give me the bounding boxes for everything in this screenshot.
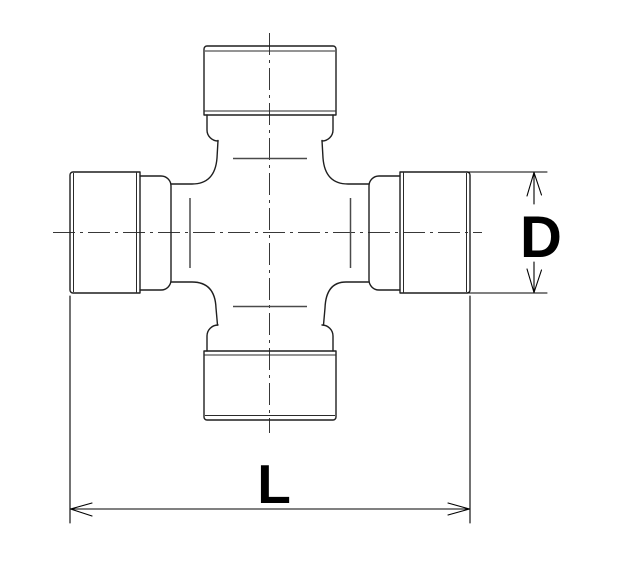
cross-body-top-left-fillet <box>171 141 218 185</box>
dimension-d-label: D <box>520 205 562 270</box>
cross-body-top-right-fillet <box>322 141 369 185</box>
bottom-cup-skirt-right <box>322 325 333 351</box>
center-lines <box>53 33 482 433</box>
bottom-cup-skirt-left <box>207 325 218 351</box>
left-bearing-cup <box>70 172 171 293</box>
top-cup-skirt-right <box>322 115 333 141</box>
cross-body-bottom-right-fillet <box>324 282 370 325</box>
top-cup-skirt-left <box>207 115 218 141</box>
ujoint-technical-drawing-canvas: D L <box>0 0 627 573</box>
ujoint-cross-drawing: D L <box>0 0 627 573</box>
cross-body-bottom-left-fillet <box>171 282 218 325</box>
dimension-l-label: L <box>257 453 291 515</box>
bottom-bearing-cup <box>204 325 336 420</box>
